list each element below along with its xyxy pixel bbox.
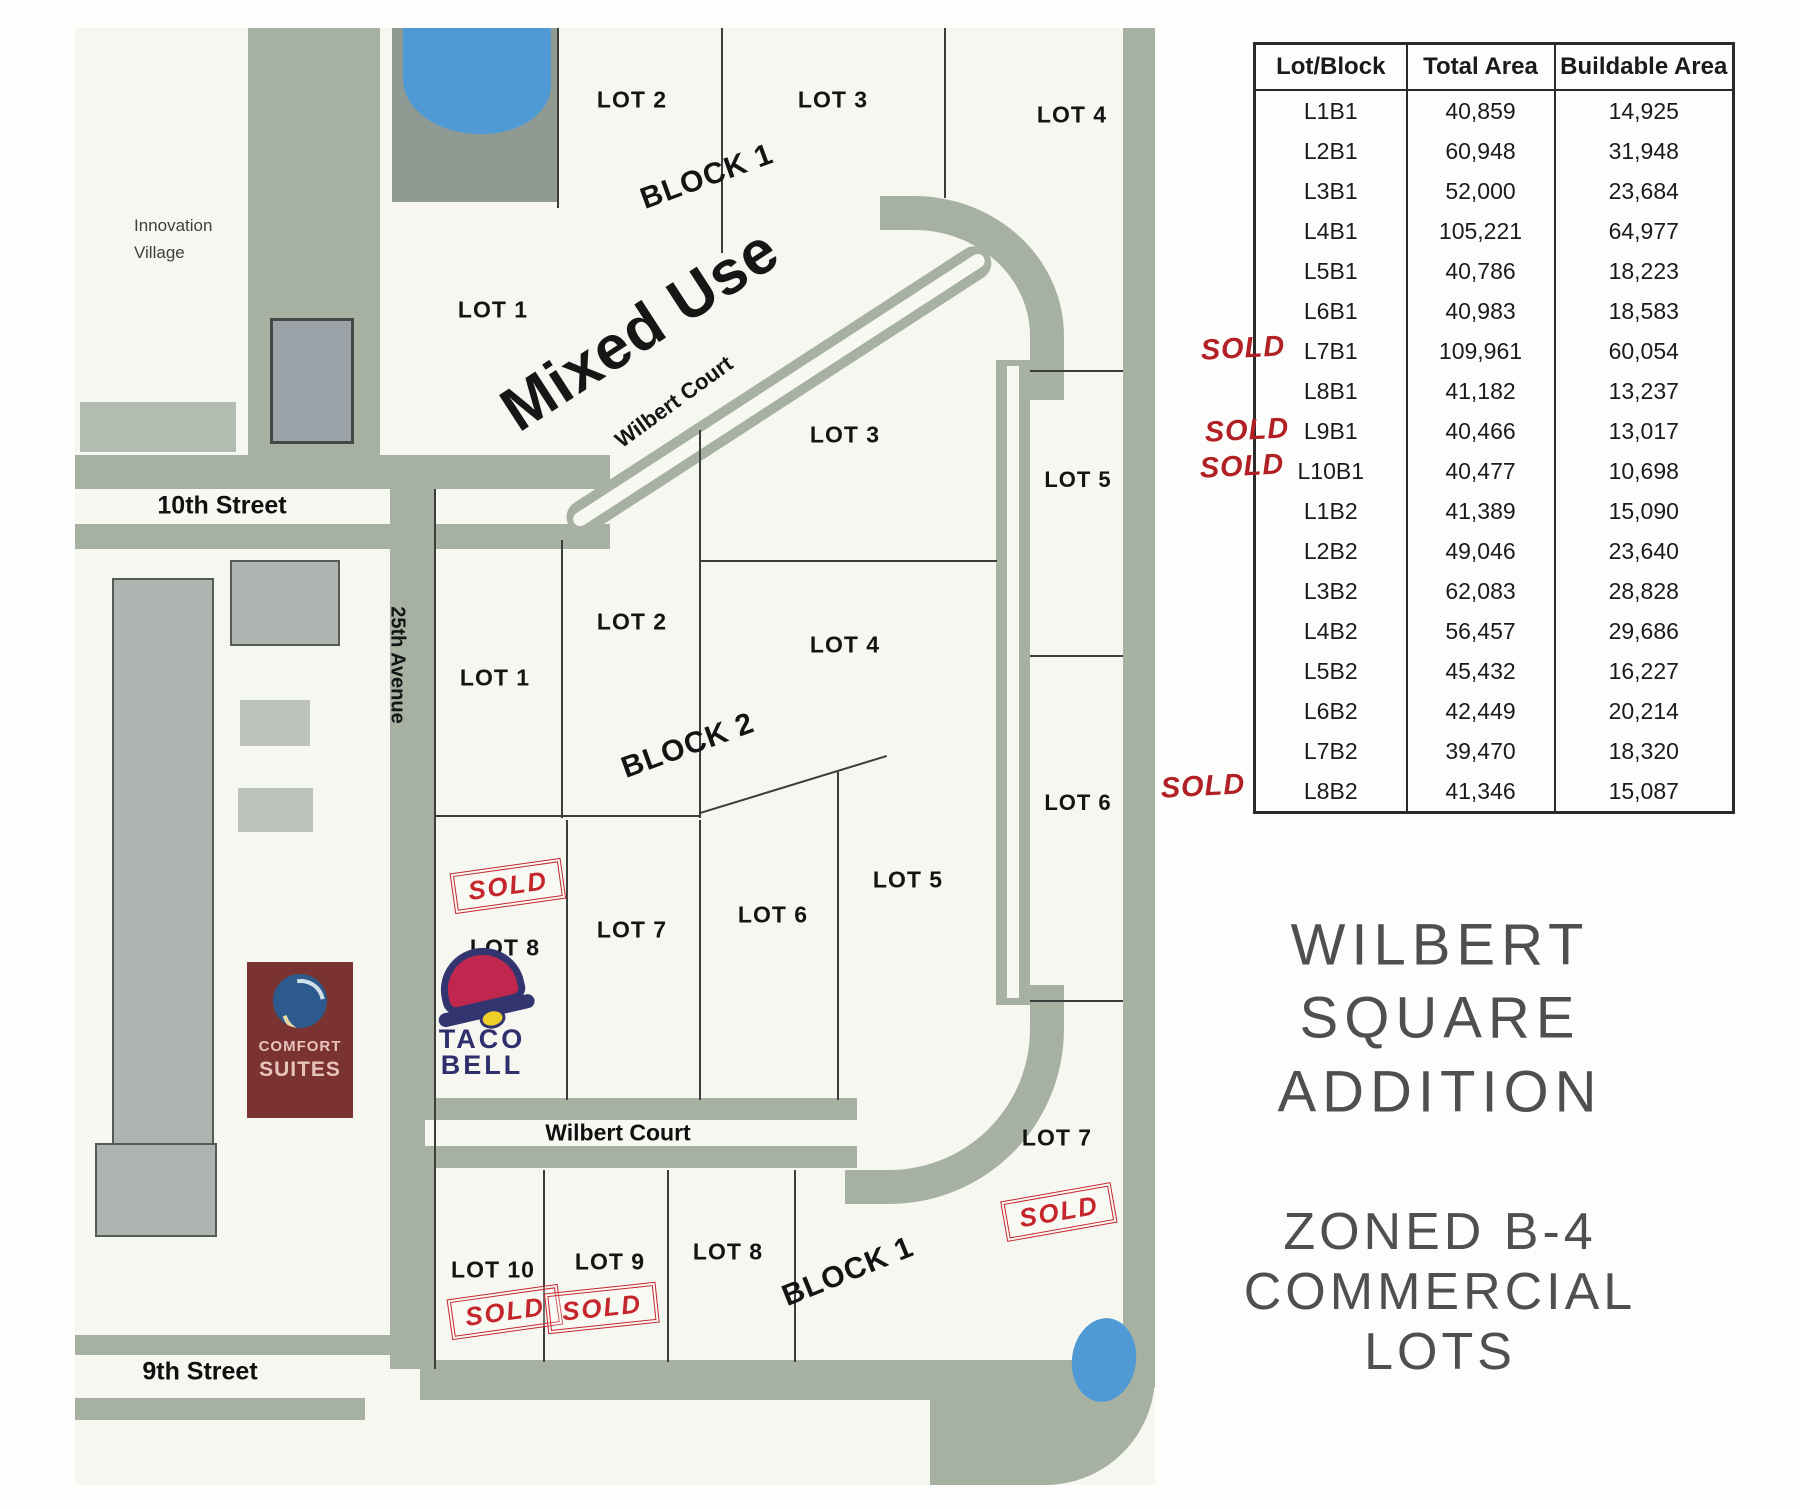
cell-total: 40,983 xyxy=(1407,291,1555,331)
cell-total: 41,182 xyxy=(1407,371,1555,411)
cell-lot: L1B2 xyxy=(1255,491,1407,531)
table-row: L2B249,04623,640 xyxy=(1255,531,1734,571)
zoning-line-3: LOTS xyxy=(1364,1322,1516,1382)
lot-boundary-line xyxy=(837,772,839,1100)
cell-lot: L2B2 xyxy=(1255,531,1407,571)
table-row: L9B140,46613,017 xyxy=(1255,411,1734,451)
cell-lot: L1B1 xyxy=(1255,90,1407,131)
lot-area-table: Lot/Block Total Area Buildable Area L1B1… xyxy=(1253,42,1735,814)
lot-boundary-line xyxy=(566,820,568,1100)
lot-label-block2-lot1: LOT 1 xyxy=(460,665,530,692)
lot-boundary-line xyxy=(543,1170,545,1362)
title-line-wilbert: WILBERT xyxy=(1291,912,1590,979)
cell-lot: L5B1 xyxy=(1255,251,1407,291)
cell-buildable: 15,090 xyxy=(1555,491,1734,531)
col-header-total-area: Total Area xyxy=(1407,44,1555,91)
title-line-square: SQUARE xyxy=(1300,985,1581,1052)
cell-buildable: 18,223 xyxy=(1555,251,1734,291)
wilbert-court-east-lane xyxy=(1007,366,1019,998)
cell-buildable: 28,828 xyxy=(1555,571,1734,611)
lot-boundary-line xyxy=(557,28,559,208)
cell-total: 56,457 xyxy=(1407,611,1555,651)
cell-buildable: 13,237 xyxy=(1555,371,1734,411)
col-header-buildable-area: Buildable Area xyxy=(1555,44,1734,91)
table-row: L7B239,47018,320 xyxy=(1255,731,1734,771)
taco-bell-wordmark-line2: BELL xyxy=(441,1052,524,1078)
cell-buildable: 10,698 xyxy=(1555,451,1734,491)
ninth-street-road-south xyxy=(75,1398,365,1420)
title-line-addition: ADDITION xyxy=(1277,1059,1602,1126)
ninth-street-road xyxy=(75,1335,427,1355)
comfort-suites-logo: COMFORT SUITES xyxy=(247,962,353,1118)
table-row: L2B160,94831,948 xyxy=(1255,131,1734,171)
comfort-suites-wordmark-line1: COMFORT xyxy=(259,1038,342,1055)
lot-label-block1-lot10: LOT 10 xyxy=(451,1257,535,1284)
cell-total: 105,221 xyxy=(1407,211,1555,251)
cell-buildable: 60,054 xyxy=(1555,331,1734,371)
table-row: L6B242,44920,214 xyxy=(1255,691,1734,731)
cell-total: 62,083 xyxy=(1407,571,1555,611)
cell-lot: L8B1 xyxy=(1255,371,1407,411)
lot-boundary-line xyxy=(434,815,701,817)
hotel-wing xyxy=(95,1143,217,1237)
parking-shape-1 xyxy=(240,700,310,746)
pond-north xyxy=(403,28,551,134)
lot-boundary-line xyxy=(667,1170,669,1362)
sold-stamp-row-l7b1: SOLD xyxy=(1200,330,1286,367)
lot-boundary-line xyxy=(1030,655,1123,657)
cell-total: 41,346 xyxy=(1407,771,1555,813)
cell-total: 40,477 xyxy=(1407,451,1555,491)
sold-stamp-row-l8b2: SOLD xyxy=(1160,768,1246,805)
lot-label-block2-lot4: LOT 4 xyxy=(810,632,880,659)
tenth-street-label: 10th Street xyxy=(157,492,286,521)
cell-total: 40,786 xyxy=(1407,251,1555,291)
lot-boundary-line xyxy=(699,820,701,1100)
sold-stamp-row-l9b1: SOLD xyxy=(1204,412,1290,449)
cell-total: 39,470 xyxy=(1407,731,1555,771)
cell-lot: L4B2 xyxy=(1255,611,1407,651)
zoning-line-1: ZONED B-4 xyxy=(1283,1202,1596,1262)
lot-label-block1-lot5: LOT 5 xyxy=(1044,467,1111,493)
cell-lot: L6B2 xyxy=(1255,691,1407,731)
innovation-village-line1: Innovation xyxy=(134,212,254,239)
south-boundary-road xyxy=(420,1360,985,1400)
cell-total: 45,432 xyxy=(1407,651,1555,691)
ninth-street-label: 9th Street xyxy=(142,1358,257,1387)
lot-label-block1-lot2: LOT 2 xyxy=(597,87,667,114)
lot-label-block2-lot6: LOT 6 xyxy=(738,902,808,929)
cell-total: 42,449 xyxy=(1407,691,1555,731)
lot-label-block2-lot7: LOT 7 xyxy=(597,917,667,944)
cell-buildable: 18,320 xyxy=(1555,731,1734,771)
cell-buildable: 29,686 xyxy=(1555,611,1734,651)
lot-label-block1-lot8: LOT 8 xyxy=(693,1239,763,1266)
table-row: L3B262,08328,828 xyxy=(1255,571,1734,611)
plat-map-flyer: Innovation Village 10th Street 25th Aven… xyxy=(0,0,1800,1509)
table-row: L1B140,85914,925 xyxy=(1255,90,1734,131)
lot-label-block2-lot5: LOT 5 xyxy=(873,867,943,894)
lot-label-block2-lot3: LOT 3 xyxy=(810,422,880,449)
table-row: L4B256,45729,686 xyxy=(1255,611,1734,651)
cell-buildable: 64,977 xyxy=(1555,211,1734,251)
cell-buildable: 31,948 xyxy=(1555,131,1734,171)
lot-label-block1-lot6: LOT 6 xyxy=(1044,790,1111,816)
table-row: L7B1109,96160,054 xyxy=(1255,331,1734,371)
sold-stamp-row-l10b1: SOLD xyxy=(1199,448,1285,485)
taco-bell-logo: TACO BELL xyxy=(424,946,540,1124)
innovation-village-line2: Village xyxy=(134,239,254,266)
table-row: L4B1105,22164,977 xyxy=(1255,211,1734,251)
lot-label-block1-lot9: LOT 9 xyxy=(575,1249,645,1276)
cell-lot: L4B1 xyxy=(1255,211,1407,251)
building-north xyxy=(230,560,340,646)
avenue-25th-label: 25th Avenue xyxy=(386,606,409,723)
cell-total: 41,389 xyxy=(1407,491,1555,531)
cell-lot: L3B2 xyxy=(1255,571,1407,611)
cell-total: 40,859 xyxy=(1407,90,1555,131)
cell-lot: L7B2 xyxy=(1255,731,1407,771)
east-boundary-road xyxy=(1123,28,1155,1388)
table-header-row: Lot/Block Total Area Buildable Area xyxy=(1255,44,1734,91)
lot-label-block1-lot7: LOT 7 xyxy=(1022,1125,1092,1152)
lot-boundary-line xyxy=(561,540,563,818)
hotel-building xyxy=(112,578,214,1147)
lot-boundary-line xyxy=(721,28,723,253)
zoning-line-2: COMMERCIAL xyxy=(1244,1262,1636,1322)
lot-label-block1-lot3: LOT 3 xyxy=(798,87,868,114)
cell-buildable: 14,925 xyxy=(1555,90,1734,131)
wilbert-court-lower-label: Wilbert Court xyxy=(545,1120,690,1147)
col-header-lot-block: Lot/Block xyxy=(1255,44,1407,91)
lot-label-block1-lot4: LOT 4 xyxy=(1037,102,1107,129)
building-row-north xyxy=(80,402,236,452)
comfort-suites-wordmark-line2: SUITES xyxy=(259,1058,341,1082)
cell-buildable: 13,017 xyxy=(1555,411,1734,451)
cell-total: 52,000 xyxy=(1407,171,1555,211)
cell-buildable: 16,227 xyxy=(1555,651,1734,691)
cell-buildable: 23,684 xyxy=(1555,171,1734,211)
cell-buildable: 18,583 xyxy=(1555,291,1734,331)
tenth-street-lane xyxy=(75,489,610,524)
cell-lot: L6B1 xyxy=(1255,291,1407,331)
cell-total: 40,466 xyxy=(1407,411,1555,451)
lot-boundary-line xyxy=(699,560,997,562)
cell-lot: L3B1 xyxy=(1255,171,1407,211)
cell-buildable: 20,214 xyxy=(1555,691,1734,731)
innovation-village-label: Innovation Village xyxy=(134,212,254,266)
lot-label-block1-lot1: LOT 1 xyxy=(458,297,528,324)
parking-shape-2 xyxy=(238,788,313,832)
table-row: L6B140,98318,583 xyxy=(1255,291,1734,331)
cell-buildable: 23,640 xyxy=(1555,531,1734,571)
table-row: L8B241,34615,087 xyxy=(1255,771,1734,813)
cell-lot: L2B1 xyxy=(1255,131,1407,171)
lot-boundary-line xyxy=(794,1170,796,1362)
cell-lot: L5B2 xyxy=(1255,651,1407,691)
table-row: L5B140,78618,223 xyxy=(1255,251,1734,291)
cell-total: 60,948 xyxy=(1407,131,1555,171)
table-row: L8B141,18213,237 xyxy=(1255,371,1734,411)
taco-bell-bell-icon xyxy=(424,936,539,1036)
comfort-suites-globe-icon xyxy=(273,974,327,1028)
lot-boundary-line xyxy=(1030,1000,1123,1002)
table-row: L1B241,38915,090 xyxy=(1255,491,1734,531)
cell-total: 49,046 xyxy=(1407,531,1555,571)
cell-lot: L8B2 xyxy=(1255,771,1407,813)
table-row: L10B140,47710,698 xyxy=(1255,451,1734,491)
lot-boundary-line xyxy=(944,28,946,198)
lot-boundary-line xyxy=(1030,370,1123,372)
cell-buildable: 15,087 xyxy=(1555,771,1734,813)
cell-total: 109,961 xyxy=(1407,331,1555,371)
table-row: L5B245,43216,227 xyxy=(1255,651,1734,691)
lot-label-block2-lot2: LOT 2 xyxy=(597,609,667,636)
table-row: L3B152,00023,684 xyxy=(1255,171,1734,211)
lot-boundary-line xyxy=(434,489,436,1369)
median-building xyxy=(270,318,354,444)
